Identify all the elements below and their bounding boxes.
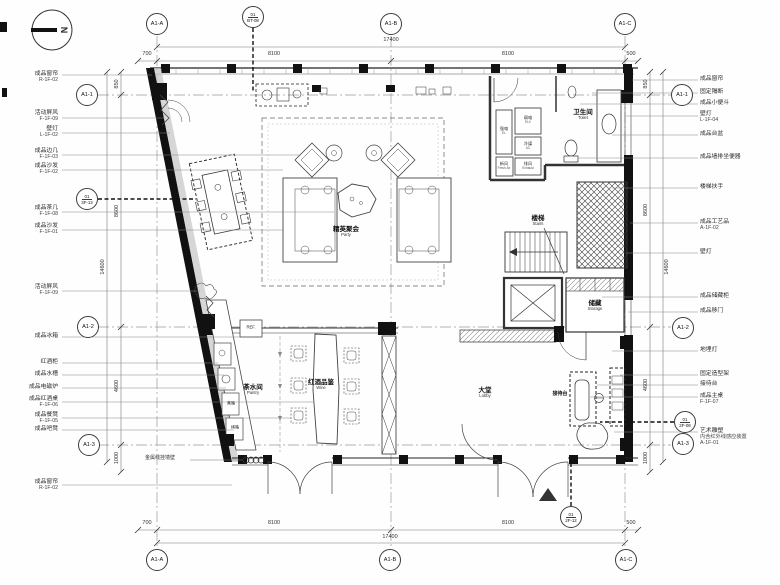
- reception-area: [570, 368, 625, 449]
- fridge-label: REF.: [246, 326, 255, 331]
- callout-urinal: 成品小便斗: [700, 100, 778, 107]
- callout-walllamp-left: 壁灯L-1F-02: [0, 126, 58, 139]
- room-label-pantry: 茶水间Pantry: [243, 384, 263, 396]
- callout-basin: 成品台盆: [700, 131, 778, 138]
- dim-left-seg2: 4600: [114, 380, 120, 392]
- grid-bubble-a11-left: A1-1: [76, 84, 98, 106]
- callout-bar-stool: 成品吧凳: [0, 426, 58, 433]
- grid-bubble-a1a-top: A1-A: [146, 13, 168, 35]
- dim-top-total: 17400: [383, 37, 398, 43]
- callout-wine-table: 成品红酒桌F-1F-06: [0, 396, 58, 409]
- grid-bubble-a11-right: A1-1: [671, 84, 693, 106]
- callout-fridge: 成品冰箱: [0, 333, 58, 340]
- detail-bubble-bottom: 012F-12: [560, 506, 582, 528]
- callout-walllamp-right: 壁灯L-1F-04: [700, 111, 778, 124]
- callout-induction: 成品电磁炉: [0, 384, 58, 391]
- shaft-label-exhaust: 排风Exhaust: [522, 162, 534, 171]
- shaft-label-elv: 弱电ELV: [524, 116, 532, 125]
- steamer-label: 蒸箱: [227, 402, 235, 407]
- dim-left-seg1: 8600: [114, 205, 120, 217]
- slanted-west-wall: [146, 68, 232, 462]
- dim-right-seg3: 1000: [643, 452, 649, 464]
- callout-screen-2: 活动屏风F-1F-09: [0, 284, 58, 297]
- detail-bubble-top: 01BT-08: [242, 6, 264, 28]
- callout-main-table: 成品主桌F-1F-07: [700, 393, 778, 406]
- dim-right-seg1: 8600: [643, 204, 649, 216]
- dim-top-seg2: 8100: [502, 51, 514, 57]
- north-label: N: [59, 27, 69, 34]
- grid-bubble-a12-left: A1-2: [77, 316, 99, 338]
- callout-sofa-2: 成品沙发F-1F-01: [0, 223, 58, 236]
- callout-side-table: 成品边几F-1F-03: [0, 148, 58, 161]
- floorplan-sheet: N A1-A A1-B A1-C A1-A A1-B A1-C A1-1 A1-…: [0, 0, 780, 585]
- callout-screen-1: 活动屏风F-1F-09: [0, 110, 58, 123]
- grid-bubble-a12-right: A1-2: [672, 317, 694, 339]
- grid-bubble-a13-right: A1-3: [672, 433, 694, 455]
- room-label-reception: 接待台: [552, 392, 567, 398]
- callout-curtain-bottom: 成品窗帘R-1F-02: [0, 479, 58, 492]
- dim-top-seg3: 500: [626, 51, 635, 57]
- callout-display-rack: 固定造型架: [700, 371, 778, 378]
- dim-bottom-seg0: 700: [142, 520, 151, 526]
- callout-toilet: 成品墙排坐便器: [700, 154, 778, 161]
- dim-left-seg0: 850: [114, 79, 120, 88]
- room-label-lobby: 大堂Lobby: [479, 387, 492, 399]
- dim-left-seg3: 1000: [114, 452, 120, 464]
- callout-reception-desk: 接待台: [700, 381, 778, 388]
- dim-bottom-total: 17400: [382, 534, 397, 540]
- room-label-stairs: 楼梯Stairs: [532, 215, 545, 227]
- entry-marker: [539, 488, 557, 501]
- wall-note: 金属线挂墙壁: [145, 456, 175, 462]
- shaft-label-el: 强电EL: [500, 127, 508, 136]
- shaft-label-fresh: 新风Fresh Air: [498, 162, 511, 171]
- room-label-party: 精英聚会Party: [333, 226, 359, 238]
- dim-bottom-seg3: 500: [626, 520, 635, 526]
- party-lounge: [262, 118, 451, 286]
- grid-bubble-a1b-top: A1-B: [380, 13, 402, 35]
- callout-tea-table: 成品茶几F-1F-08: [0, 205, 58, 218]
- callout-sliding-door: 成品移门: [700, 308, 778, 315]
- grid-bubble-a1c-top: A1-C: [614, 13, 636, 35]
- callout-stool: 成品餐凳F-1F-05: [0, 412, 58, 425]
- columns-bottom: [238, 455, 625, 464]
- detail-bubble-left: 013F-13: [76, 188, 98, 210]
- dim-right-total: 14600: [664, 259, 670, 274]
- callout-sink: 成品水槽: [0, 371, 58, 378]
- callout-sculpture: 艺术雕塑内含红外线感应装置A-1F-01: [700, 428, 778, 447]
- oven-label: 烤箱: [231, 426, 239, 431]
- dim-top-seg0: 700: [142, 51, 151, 57]
- callout-storage-cab: 成品储藏柜: [700, 293, 778, 300]
- callout-floor-light: 地埋灯: [700, 347, 778, 354]
- shaft-label-ac: 冷媒AC: [524, 142, 532, 151]
- callout-wine-cabinet: 红酒柜: [0, 359, 58, 366]
- dim-bottom-seg1: 8100: [268, 520, 280, 526]
- callout-sofa-1: 成品沙发F-1F-02: [0, 163, 58, 176]
- desk-group: [187, 154, 254, 250]
- callout-artwork: 成品工艺品A-1F-02: [700, 219, 778, 232]
- dim-top-seg1: 8100: [268, 51, 280, 57]
- stair-core: [504, 182, 627, 332]
- room-label-toilet: 卫生间Toilet: [573, 109, 593, 121]
- callout-walllamp-2: 壁灯: [700, 249, 778, 256]
- callout-partition: 固定隔断: [700, 89, 778, 96]
- dim-left-total: 14600: [100, 259, 106, 274]
- edge-marks: [0, 22, 7, 97]
- room-label-storage: 储藏Storage: [588, 300, 603, 312]
- grid-bubble-a1a-bottom: A1-A: [146, 549, 168, 571]
- dim-bottom-seg2: 8100: [502, 520, 514, 526]
- entrance-doors: [268, 424, 568, 501]
- dim-right-seg2: 4600: [643, 379, 649, 391]
- room-label-wine: 红酒品鉴Wine: [308, 379, 334, 391]
- grid-bubble-a1c-bottom: A1-C: [615, 549, 637, 571]
- dim-right-seg0: 850: [643, 79, 649, 88]
- callout-curtain-right: 成品窗帘: [700, 76, 778, 83]
- detail-bubble-right: 012F-08: [674, 411, 696, 433]
- callout-curtain-left: 成品窗帘R-1F-02: [0, 71, 58, 84]
- callout-handrail: 楼梯扶手: [700, 184, 778, 191]
- grid-bubble-a13-left: A1-3: [78, 434, 100, 456]
- grid-bubble-a1b-bottom: A1-B: [379, 549, 401, 571]
